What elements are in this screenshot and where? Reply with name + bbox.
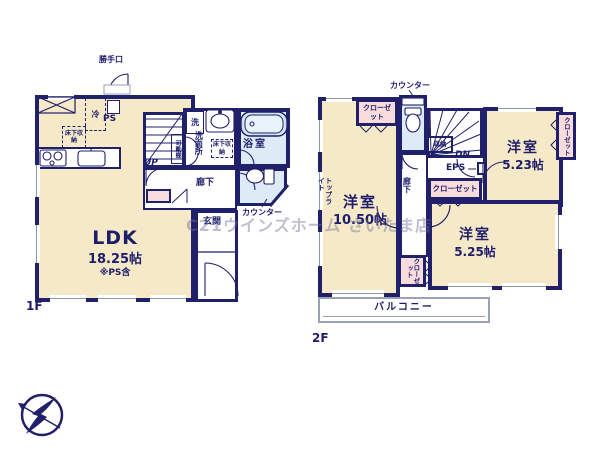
closet-mid-label: クローゼット (433, 185, 478, 193)
storage-label: 収納 (434, 141, 447, 148)
up-label: UP (144, 159, 158, 168)
window (33, 225, 40, 263)
understair-storage (146, 189, 171, 203)
window (316, 232, 323, 266)
window (48, 93, 74, 100)
bedroom-south-area: 5.25帖 (412, 246, 538, 258)
backdoor-step (104, 85, 130, 94)
compass-icon (18, 395, 62, 435)
ldk-note: ※PS含 (65, 269, 165, 278)
kitchen-counter (37, 147, 121, 169)
floorplan-canvas: 洗 可動棚 冷 床下収納 床下収納 収納 クローゼット クローゼット クローゼッ… (0, 0, 600, 450)
ldk-name: LDK (65, 229, 165, 248)
window (332, 290, 384, 297)
underfloor-wash-label: 床下収納 (212, 141, 232, 155)
ldk-area: 18.25帖 (65, 253, 165, 266)
movable-shelf-label: 可動棚 (174, 140, 180, 158)
ldk-label-block: LDK 18.25帖 ※PS含 (65, 229, 165, 278)
window (316, 120, 323, 152)
closet-nw-box: クローゼット (356, 99, 398, 126)
closet-s: クローゼット (398, 255, 426, 287)
floor1-label: 1F (26, 300, 43, 312)
closet-s-label: クローゼット (405, 258, 419, 284)
window (150, 295, 186, 302)
bathroom-1f (237, 108, 290, 168)
underfloor-storage-wash: 床下収納 (211, 139, 233, 158)
window (498, 105, 536, 112)
closet-nw-label: クローゼット (361, 104, 393, 121)
bedroom-east-area: 5.23帖 (483, 159, 563, 171)
movable-shelf-box: 可動棚 (171, 134, 183, 164)
backdoor-label: 勝手口 (99, 56, 123, 64)
washroom-label: 洗面所 (194, 131, 202, 171)
ps-label: PS (103, 115, 116, 124)
eps-label: EPS (446, 164, 465, 173)
window (502, 283, 546, 290)
backdoor-arc (109, 74, 128, 93)
closet-e-label: クローゼット (563, 117, 570, 156)
balcony-rail (323, 316, 485, 317)
dn-label: DN (455, 151, 470, 160)
underfloor-storage-kitchen: 床下収納 (62, 126, 86, 148)
fridge-label: 冷 (92, 111, 100, 119)
bathroom-label: 浴室 (243, 140, 267, 150)
underfloor-kitchen-label: 床下収納 (63, 130, 85, 144)
window (33, 165, 40, 197)
window (555, 215, 562, 249)
bedroom-east-label-block: 洋室 5.23帖 (483, 141, 563, 171)
ps-shaft (107, 100, 120, 114)
window (326, 95, 352, 102)
window (98, 295, 136, 302)
toilet-2f (399, 95, 427, 153)
counter-2f-label: カウンター (390, 82, 430, 90)
window (50, 295, 86, 302)
floor2-label: 2F (312, 332, 329, 344)
toilet-1f (237, 168, 287, 206)
bedroom-large-name: 洋室 (321, 195, 399, 210)
balcony-label: バルコニー (318, 303, 490, 313)
watermark: C21ウインズホーム さいたま店 (186, 212, 432, 236)
hallway-2f-label: 廊下 (402, 177, 410, 207)
window (448, 283, 492, 290)
bedroom-east-name: 洋室 (483, 141, 563, 155)
washer-label: 洗 (191, 119, 199, 127)
closet-mid: クローゼット (428, 178, 482, 200)
hallway-1f-label: 廊下 (196, 179, 214, 188)
storage-box-2f: 収納 (427, 136, 453, 153)
